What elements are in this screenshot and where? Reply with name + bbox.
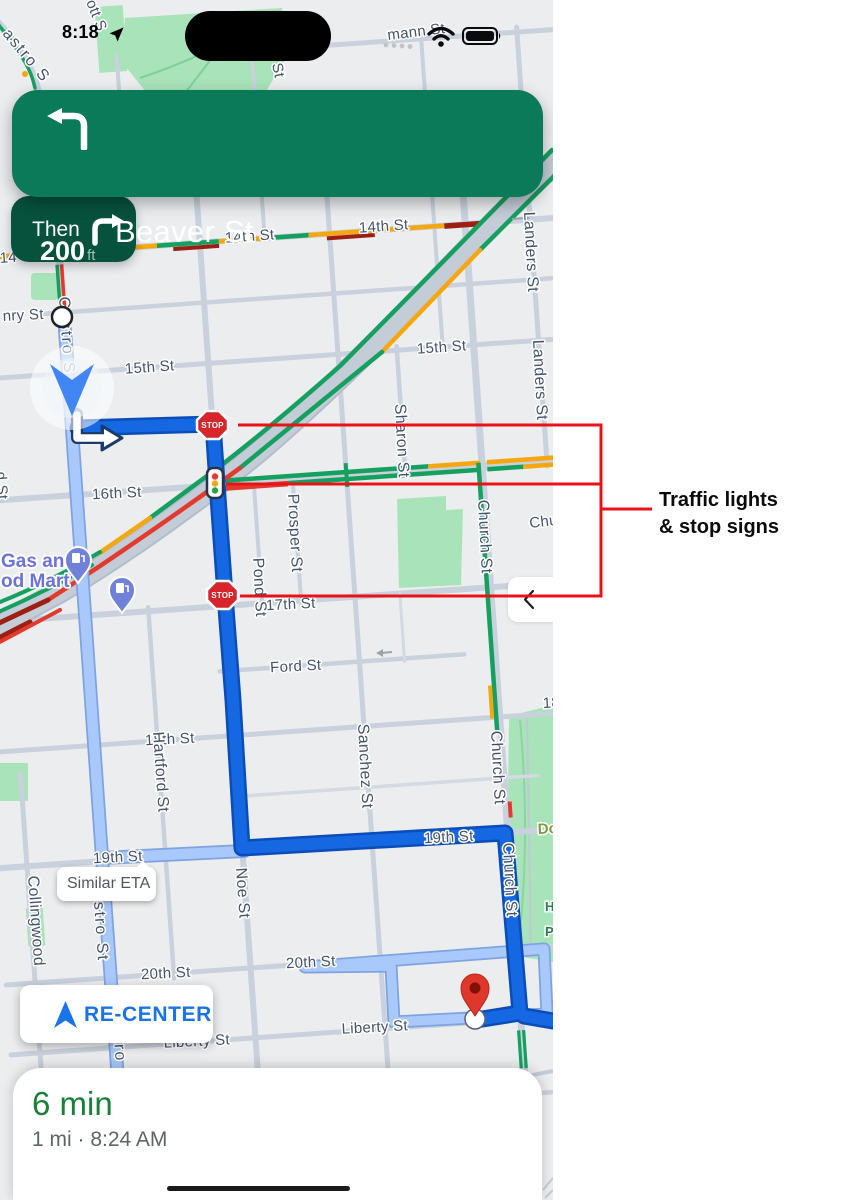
street-label: d St: [0, 471, 11, 501]
street-label: 15th St: [124, 357, 175, 377]
wifi-icon: [427, 27, 455, 47]
destination-pin[interactable]: [461, 974, 489, 1029]
street-label: Chu: [528, 512, 553, 532]
navigation-arrow-icon: [54, 1001, 77, 1028]
battery-icon: [462, 27, 502, 45]
street-label: 17th St: [266, 595, 317, 615]
street-label: Liberty St: [341, 1017, 409, 1037]
trip-details: 1 mi · 8:24 AM: [32, 1128, 167, 1152]
street-label: 19th St: [424, 828, 475, 848]
annotation-text-line2: & stop signs: [659, 516, 779, 538]
chevron-left-icon: [520, 588, 540, 612]
street-label: 15th St: [416, 337, 467, 357]
recenter-label: RE-CENTER: [84, 1003, 212, 1027]
similar-eta-bubble[interactable]: Similar ETA: [57, 867, 156, 901]
dynamic-island: [185, 11, 331, 61]
street-label: 20th St: [141, 964, 192, 984]
location-services-icon: [109, 27, 124, 42]
recenter-button[interactable]: RE-CENTER: [20, 985, 213, 1043]
park-label: Dol: [537, 820, 553, 838]
maneuver-street: Beaver St: [115, 214, 254, 250]
turn-left-icon: [44, 104, 92, 150]
street-label: 20th St: [286, 953, 337, 973]
svg-text:STOP: STOP: [201, 421, 224, 430]
similar-eta-label: Similar ETA: [67, 875, 150, 893]
traffic-light-icon: [207, 468, 223, 498]
status-bar: 8:18: [0, 0, 553, 62]
street-label: Noe St: [232, 867, 253, 919]
stop-sign: STOP: [207, 581, 238, 609]
home-indicator[interactable]: [167, 1186, 350, 1191]
distance-unit: ft: [87, 247, 95, 264]
page: astro S ott S St mann St 14th St 14th St…: [0, 0, 850, 1200]
street-label: 18: [542, 694, 553, 712]
street-label: Ford St: [270, 657, 323, 677]
trip-bottom-sheet[interactable]: 6 min 1 mi · 8:24 AM: [13, 1068, 542, 1200]
collapsed-panel[interactable]: [508, 577, 553, 622]
annotation-text-line1: Traffic lights: [659, 489, 778, 511]
poi-label: H: [545, 899, 553, 914]
street-label: 14th St: [358, 216, 409, 236]
trip-eta: 6 min: [32, 1085, 113, 1123]
street-label: Pond St: [249, 557, 269, 617]
svg-text:STOP: STOP: [211, 591, 234, 600]
location-puck: [30, 346, 114, 430]
street-label: 16th St: [92, 484, 143, 504]
stop-sign: STOP: [197, 411, 228, 439]
maneuver-dot: [52, 307, 72, 327]
navigation-banner[interactable]: 200ft Beaver St: [12, 90, 543, 197]
clock: 8:18: [62, 22, 99, 43]
maneuver-distance: 200ft: [40, 236, 95, 267]
poi-label: P: [545, 924, 553, 939]
street-label: nry St: [2, 306, 44, 325]
street-label: 19th St: [93, 848, 144, 868]
phone-screenshot: astro S ott S St mann St 14th St 14th St…: [0, 0, 553, 1200]
gas-station-label: od Mart: [1, 571, 70, 592]
